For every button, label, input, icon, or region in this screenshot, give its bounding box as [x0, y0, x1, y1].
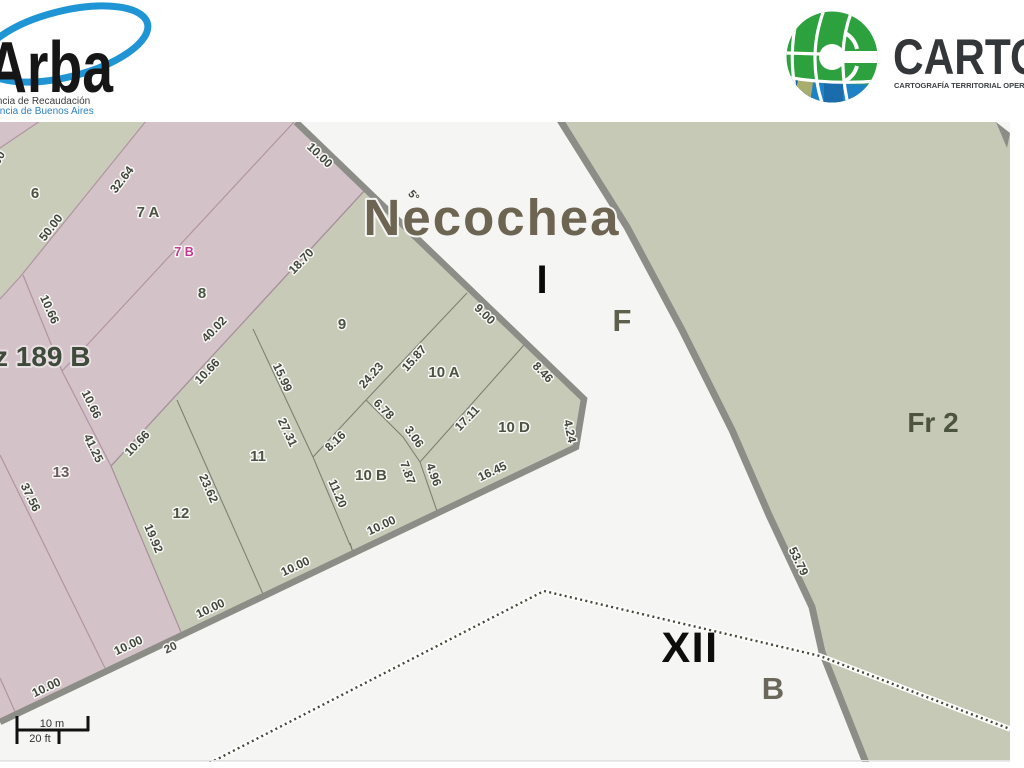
svg-text:20 ft: 20 ft: [29, 733, 50, 745]
svg-text:8: 8: [198, 285, 206, 302]
svg-text:B: B: [762, 671, 784, 706]
svg-text:Fr 2: Fr 2: [907, 407, 958, 438]
svg-text:6: 6: [31, 185, 39, 202]
svg-text:10 A: 10 A: [428, 364, 459, 381]
svg-text:10 D: 10 D: [498, 419, 530, 436]
svg-text:CARTOGRAFÍA TERRITORIAL OPERAT: CARTOGRAFÍA TERRITORIAL OPERATIVA: [894, 81, 1024, 90]
svg-text:9: 9: [338, 316, 346, 333]
svg-text:13: 13: [53, 464, 70, 481]
svg-text:CARTO: CARTO: [893, 29, 1024, 85]
svg-text:Provincia de Buenos Aires: Provincia de Buenos Aires: [0, 106, 94, 117]
svg-text:11: 11: [250, 448, 266, 465]
svg-text:Necochea: Necochea: [364, 189, 621, 246]
svg-text:I: I: [536, 258, 547, 302]
svg-text:10 m: 10 m: [40, 718, 64, 730]
svg-text:10 B: 10 B: [355, 467, 387, 484]
svg-text:7 B: 7 B: [174, 245, 193, 259]
svg-text:F: F: [613, 303, 632, 338]
svg-text:XII: XII: [661, 624, 718, 672]
svg-text:z 189 B: z 189 B: [0, 341, 91, 372]
svg-text:12: 12: [173, 505, 190, 522]
svg-text:7 A: 7 A: [137, 204, 160, 221]
